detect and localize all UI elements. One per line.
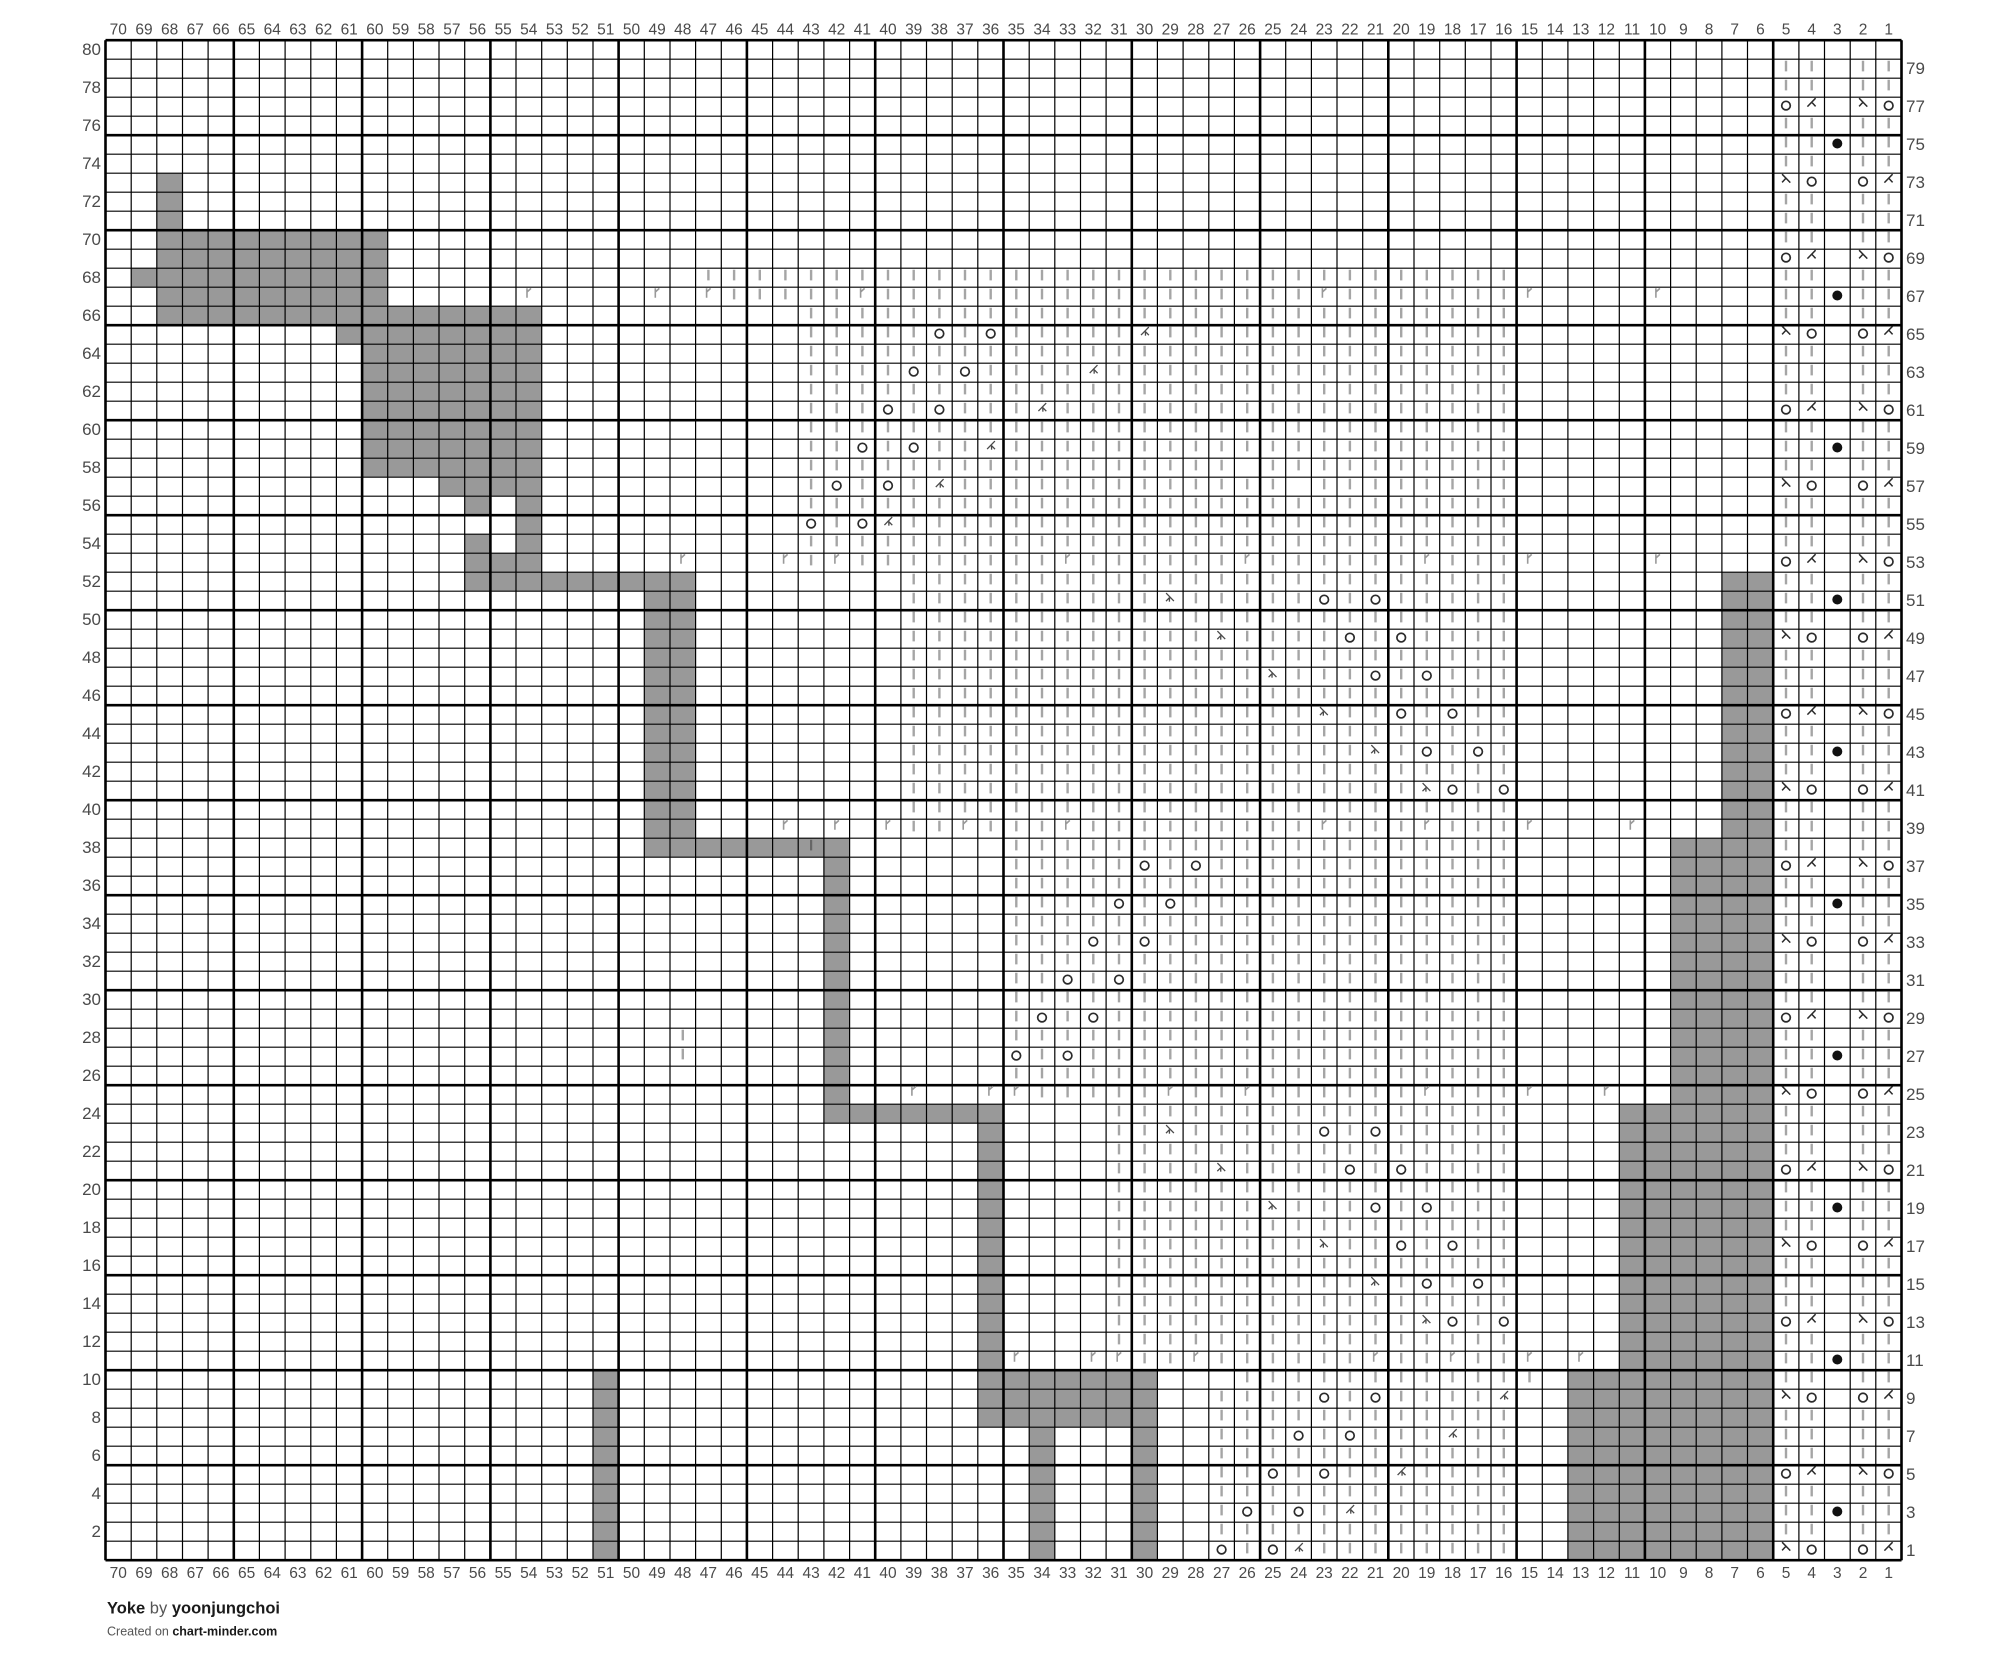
svg-text:32: 32 xyxy=(82,952,101,971)
svg-text:20: 20 xyxy=(1393,1565,1411,1582)
svg-text:58: 58 xyxy=(82,458,101,477)
svg-text:6: 6 xyxy=(1756,1565,1765,1582)
svg-text:80: 80 xyxy=(82,40,101,59)
svg-text:37: 37 xyxy=(956,22,973,39)
svg-text:7: 7 xyxy=(1906,1427,1915,1446)
svg-text:20: 20 xyxy=(1393,22,1411,39)
svg-text:62: 62 xyxy=(315,1565,332,1582)
svg-text:65: 65 xyxy=(238,1565,255,1582)
svg-text:1: 1 xyxy=(1906,1541,1915,1560)
svg-text:18: 18 xyxy=(1444,22,1461,39)
svg-text:74: 74 xyxy=(82,154,101,173)
svg-text:30: 30 xyxy=(82,990,101,1009)
svg-text:66: 66 xyxy=(212,1565,229,1582)
svg-text:34: 34 xyxy=(82,914,101,933)
svg-text:15: 15 xyxy=(1521,1565,1538,1582)
svg-text:73: 73 xyxy=(1906,173,1925,192)
svg-text:16: 16 xyxy=(1495,22,1512,39)
svg-text:13: 13 xyxy=(1572,22,1589,39)
svg-text:19: 19 xyxy=(1418,22,1435,39)
svg-text:46: 46 xyxy=(725,1565,742,1582)
svg-text:70: 70 xyxy=(110,22,128,39)
svg-text:32: 32 xyxy=(1085,22,1102,39)
svg-text:44: 44 xyxy=(82,724,101,743)
svg-text:25: 25 xyxy=(1264,22,1281,39)
svg-text:51: 51 xyxy=(597,1565,614,1582)
svg-text:43: 43 xyxy=(1906,743,1925,762)
svg-text:1: 1 xyxy=(1884,1565,1893,1582)
svg-text:Created on chart-minder.com: Created on chart-minder.com xyxy=(107,1625,277,1639)
svg-text:30: 30 xyxy=(1136,22,1154,39)
svg-text:25: 25 xyxy=(1906,1085,1925,1104)
svg-text:43: 43 xyxy=(802,1565,819,1582)
svg-text:3: 3 xyxy=(1906,1503,1915,1522)
svg-text:54: 54 xyxy=(520,1565,538,1582)
svg-text:72: 72 xyxy=(82,192,101,211)
svg-text:22: 22 xyxy=(82,1142,101,1161)
svg-text:6: 6 xyxy=(92,1446,101,1465)
svg-text:19: 19 xyxy=(1418,1565,1435,1582)
svg-text:60: 60 xyxy=(82,420,101,439)
svg-text:57: 57 xyxy=(443,1565,460,1582)
svg-text:67: 67 xyxy=(187,22,204,39)
svg-text:14: 14 xyxy=(1546,22,1564,39)
svg-text:75: 75 xyxy=(1906,135,1925,154)
svg-text:41: 41 xyxy=(854,1565,871,1582)
svg-text:7: 7 xyxy=(1730,22,1739,39)
svg-text:59: 59 xyxy=(392,1565,409,1582)
svg-text:58: 58 xyxy=(418,22,435,39)
svg-text:70: 70 xyxy=(110,1565,128,1582)
svg-text:10: 10 xyxy=(1649,1565,1667,1582)
svg-text:39: 39 xyxy=(905,22,922,39)
svg-text:26: 26 xyxy=(82,1066,101,1085)
svg-text:15: 15 xyxy=(1906,1275,1925,1294)
svg-text:50: 50 xyxy=(623,1565,641,1582)
svg-text:15: 15 xyxy=(1521,22,1538,39)
svg-text:69: 69 xyxy=(135,22,152,39)
svg-text:40: 40 xyxy=(879,1565,897,1582)
svg-text:69: 69 xyxy=(135,1565,152,1582)
svg-text:35: 35 xyxy=(1008,22,1025,39)
svg-text:4: 4 xyxy=(92,1484,101,1503)
svg-text:67: 67 xyxy=(1906,287,1925,306)
svg-text:32: 32 xyxy=(1085,1565,1102,1582)
svg-text:8: 8 xyxy=(92,1408,101,1427)
svg-text:68: 68 xyxy=(82,268,101,287)
svg-text:54: 54 xyxy=(520,22,538,39)
svg-text:28: 28 xyxy=(1187,1565,1204,1582)
svg-text:4: 4 xyxy=(1807,1565,1816,1582)
svg-text:9: 9 xyxy=(1679,1565,1688,1582)
svg-text:4: 4 xyxy=(1807,22,1816,39)
svg-text:62: 62 xyxy=(82,382,101,401)
svg-text:16: 16 xyxy=(1495,1565,1512,1582)
svg-text:42: 42 xyxy=(82,762,101,781)
svg-text:64: 64 xyxy=(264,1565,282,1582)
svg-text:1: 1 xyxy=(1884,22,1893,39)
svg-text:59: 59 xyxy=(1906,439,1925,458)
svg-text:59: 59 xyxy=(392,22,409,39)
svg-text:24: 24 xyxy=(82,1104,101,1123)
svg-text:55: 55 xyxy=(495,22,512,39)
svg-text:11: 11 xyxy=(1624,22,1640,39)
svg-text:3: 3 xyxy=(1833,22,1842,39)
svg-text:76: 76 xyxy=(82,116,101,135)
svg-text:48: 48 xyxy=(674,22,691,39)
svg-text:2: 2 xyxy=(92,1522,101,1541)
svg-text:62: 62 xyxy=(315,22,332,39)
svg-text:44: 44 xyxy=(777,22,795,39)
svg-text:36: 36 xyxy=(982,22,999,39)
svg-text:25: 25 xyxy=(1264,1565,1281,1582)
svg-text:40: 40 xyxy=(82,800,101,819)
svg-text:17: 17 xyxy=(1906,1237,1925,1256)
svg-text:66: 66 xyxy=(82,306,101,325)
svg-text:6: 6 xyxy=(1756,22,1765,39)
svg-text:57: 57 xyxy=(1906,477,1925,496)
svg-text:34: 34 xyxy=(1033,22,1051,39)
svg-text:63: 63 xyxy=(289,22,306,39)
svg-text:41: 41 xyxy=(1906,781,1925,800)
svg-text:28: 28 xyxy=(82,1028,101,1047)
svg-text:29: 29 xyxy=(1162,22,1179,39)
svg-text:9: 9 xyxy=(1906,1389,1915,1408)
svg-text:45: 45 xyxy=(751,1565,768,1582)
svg-text:30: 30 xyxy=(1136,1565,1154,1582)
svg-text:64: 64 xyxy=(82,344,101,363)
svg-text:37: 37 xyxy=(1906,857,1925,876)
svg-text:16: 16 xyxy=(82,1256,101,1275)
svg-text:23: 23 xyxy=(1316,22,1333,39)
svg-text:18: 18 xyxy=(82,1218,101,1237)
svg-text:8: 8 xyxy=(1705,22,1714,39)
svg-text:14: 14 xyxy=(82,1294,101,1313)
svg-text:77: 77 xyxy=(1906,97,1925,116)
svg-text:33: 33 xyxy=(1059,22,1076,39)
svg-text:12: 12 xyxy=(82,1332,101,1351)
svg-text:8: 8 xyxy=(1705,1565,1714,1582)
svg-text:68: 68 xyxy=(161,1565,178,1582)
svg-text:27: 27 xyxy=(1213,22,1230,39)
svg-text:12: 12 xyxy=(1598,1565,1615,1582)
svg-text:65: 65 xyxy=(1906,325,1925,344)
svg-text:38: 38 xyxy=(82,838,101,857)
svg-text:21: 21 xyxy=(1906,1161,1925,1180)
svg-text:47: 47 xyxy=(700,1565,717,1582)
svg-text:44: 44 xyxy=(777,1565,795,1582)
svg-text:21: 21 xyxy=(1367,1565,1384,1582)
svg-text:47: 47 xyxy=(700,22,717,39)
svg-text:31: 31 xyxy=(1110,1565,1127,1582)
svg-text:13: 13 xyxy=(1572,1565,1589,1582)
svg-text:17: 17 xyxy=(1469,22,1486,39)
svg-text:55: 55 xyxy=(1906,515,1925,534)
svg-text:54: 54 xyxy=(82,534,101,553)
svg-text:10: 10 xyxy=(1649,22,1667,39)
svg-text:57: 57 xyxy=(443,22,460,39)
svg-text:2: 2 xyxy=(1859,22,1868,39)
svg-text:5: 5 xyxy=(1782,1565,1791,1582)
svg-text:45: 45 xyxy=(751,22,768,39)
svg-text:10: 10 xyxy=(82,1370,101,1389)
svg-text:53: 53 xyxy=(1906,553,1925,572)
svg-text:23: 23 xyxy=(1906,1123,1925,1142)
svg-text:39: 39 xyxy=(1906,819,1925,838)
svg-text:41: 41 xyxy=(854,22,871,39)
svg-text:11: 11 xyxy=(1906,1351,1924,1370)
svg-text:69: 69 xyxy=(1906,249,1925,268)
svg-text:35: 35 xyxy=(1008,1565,1025,1582)
svg-text:13: 13 xyxy=(1906,1313,1925,1332)
svg-text:38: 38 xyxy=(931,22,948,39)
svg-text:11: 11 xyxy=(1624,1565,1640,1582)
svg-text:29: 29 xyxy=(1906,1009,1925,1028)
svg-text:63: 63 xyxy=(289,1565,306,1582)
svg-text:22: 22 xyxy=(1341,1565,1358,1582)
svg-text:33: 33 xyxy=(1059,1565,1076,1582)
svg-text:71: 71 xyxy=(1906,211,1925,230)
svg-text:46: 46 xyxy=(725,22,742,39)
svg-text:24: 24 xyxy=(1290,1565,1308,1582)
svg-text:31: 31 xyxy=(1110,22,1127,39)
svg-text:31: 31 xyxy=(1906,971,1925,990)
svg-text:64: 64 xyxy=(264,22,282,39)
svg-text:49: 49 xyxy=(648,1565,665,1582)
svg-text:21: 21 xyxy=(1367,22,1384,39)
svg-text:45: 45 xyxy=(1906,705,1925,724)
svg-text:29: 29 xyxy=(1162,1565,1179,1582)
svg-text:28: 28 xyxy=(1187,22,1204,39)
svg-text:49: 49 xyxy=(1906,629,1925,648)
svg-text:67: 67 xyxy=(187,1565,204,1582)
svg-text:48: 48 xyxy=(82,648,101,667)
svg-text:68: 68 xyxy=(161,22,178,39)
svg-text:37: 37 xyxy=(956,1565,973,1582)
svg-text:36: 36 xyxy=(82,876,101,895)
svg-text:60: 60 xyxy=(366,22,384,39)
svg-text:51: 51 xyxy=(1906,591,1925,610)
svg-text:26: 26 xyxy=(1239,1565,1256,1582)
svg-text:60: 60 xyxy=(366,1565,384,1582)
svg-text:65: 65 xyxy=(238,22,255,39)
svg-text:24: 24 xyxy=(1290,22,1308,39)
svg-text:47: 47 xyxy=(1906,667,1925,686)
svg-text:22: 22 xyxy=(1341,22,1358,39)
svg-text:19: 19 xyxy=(1906,1199,1925,1218)
svg-text:2: 2 xyxy=(1859,1565,1868,1582)
svg-text:33: 33 xyxy=(1906,933,1925,952)
svg-text:56: 56 xyxy=(82,496,101,515)
svg-text:12: 12 xyxy=(1598,22,1615,39)
svg-text:49: 49 xyxy=(648,22,665,39)
svg-text:79: 79 xyxy=(1906,59,1925,78)
svg-text:27: 27 xyxy=(1213,1565,1230,1582)
svg-text:58: 58 xyxy=(418,1565,435,1582)
svg-text:50: 50 xyxy=(82,610,101,629)
svg-text:39: 39 xyxy=(905,1565,922,1582)
svg-text:63: 63 xyxy=(1906,363,1925,382)
svg-text:26: 26 xyxy=(1239,22,1256,39)
svg-text:3: 3 xyxy=(1833,1565,1842,1582)
svg-text:53: 53 xyxy=(546,22,563,39)
svg-text:35: 35 xyxy=(1906,895,1925,914)
svg-text:9: 9 xyxy=(1679,22,1688,39)
svg-text:78: 78 xyxy=(82,78,101,97)
svg-text:42: 42 xyxy=(828,1565,845,1582)
svg-text:52: 52 xyxy=(82,572,101,591)
svg-text:20: 20 xyxy=(82,1180,101,1199)
svg-text:51: 51 xyxy=(597,22,614,39)
svg-text:Yoke by yoonjungchoi: Yoke by yoonjungchoi xyxy=(107,1600,280,1618)
svg-text:66: 66 xyxy=(212,22,229,39)
svg-text:48: 48 xyxy=(674,1565,691,1582)
svg-text:53: 53 xyxy=(546,1565,563,1582)
svg-text:61: 61 xyxy=(1906,401,1925,420)
svg-text:52: 52 xyxy=(572,22,589,39)
svg-text:5: 5 xyxy=(1782,22,1791,39)
svg-text:50: 50 xyxy=(623,22,641,39)
svg-text:42: 42 xyxy=(828,22,845,39)
svg-text:46: 46 xyxy=(82,686,101,705)
svg-text:36: 36 xyxy=(982,1565,999,1582)
svg-text:14: 14 xyxy=(1546,1565,1564,1582)
svg-text:27: 27 xyxy=(1906,1047,1925,1066)
svg-text:70: 70 xyxy=(82,230,101,249)
svg-text:56: 56 xyxy=(469,22,486,39)
svg-text:40: 40 xyxy=(879,22,897,39)
svg-text:17: 17 xyxy=(1469,1565,1486,1582)
svg-text:23: 23 xyxy=(1316,1565,1333,1582)
svg-text:34: 34 xyxy=(1033,1565,1051,1582)
svg-text:38: 38 xyxy=(931,1565,948,1582)
svg-text:61: 61 xyxy=(341,1565,358,1582)
svg-text:7: 7 xyxy=(1730,1565,1739,1582)
svg-text:5: 5 xyxy=(1906,1465,1915,1484)
svg-text:61: 61 xyxy=(341,22,358,39)
svg-text:56: 56 xyxy=(469,1565,486,1582)
svg-text:52: 52 xyxy=(572,1565,589,1582)
svg-text:55: 55 xyxy=(495,1565,512,1582)
svg-text:43: 43 xyxy=(802,22,819,39)
svg-text:18: 18 xyxy=(1444,1565,1461,1582)
